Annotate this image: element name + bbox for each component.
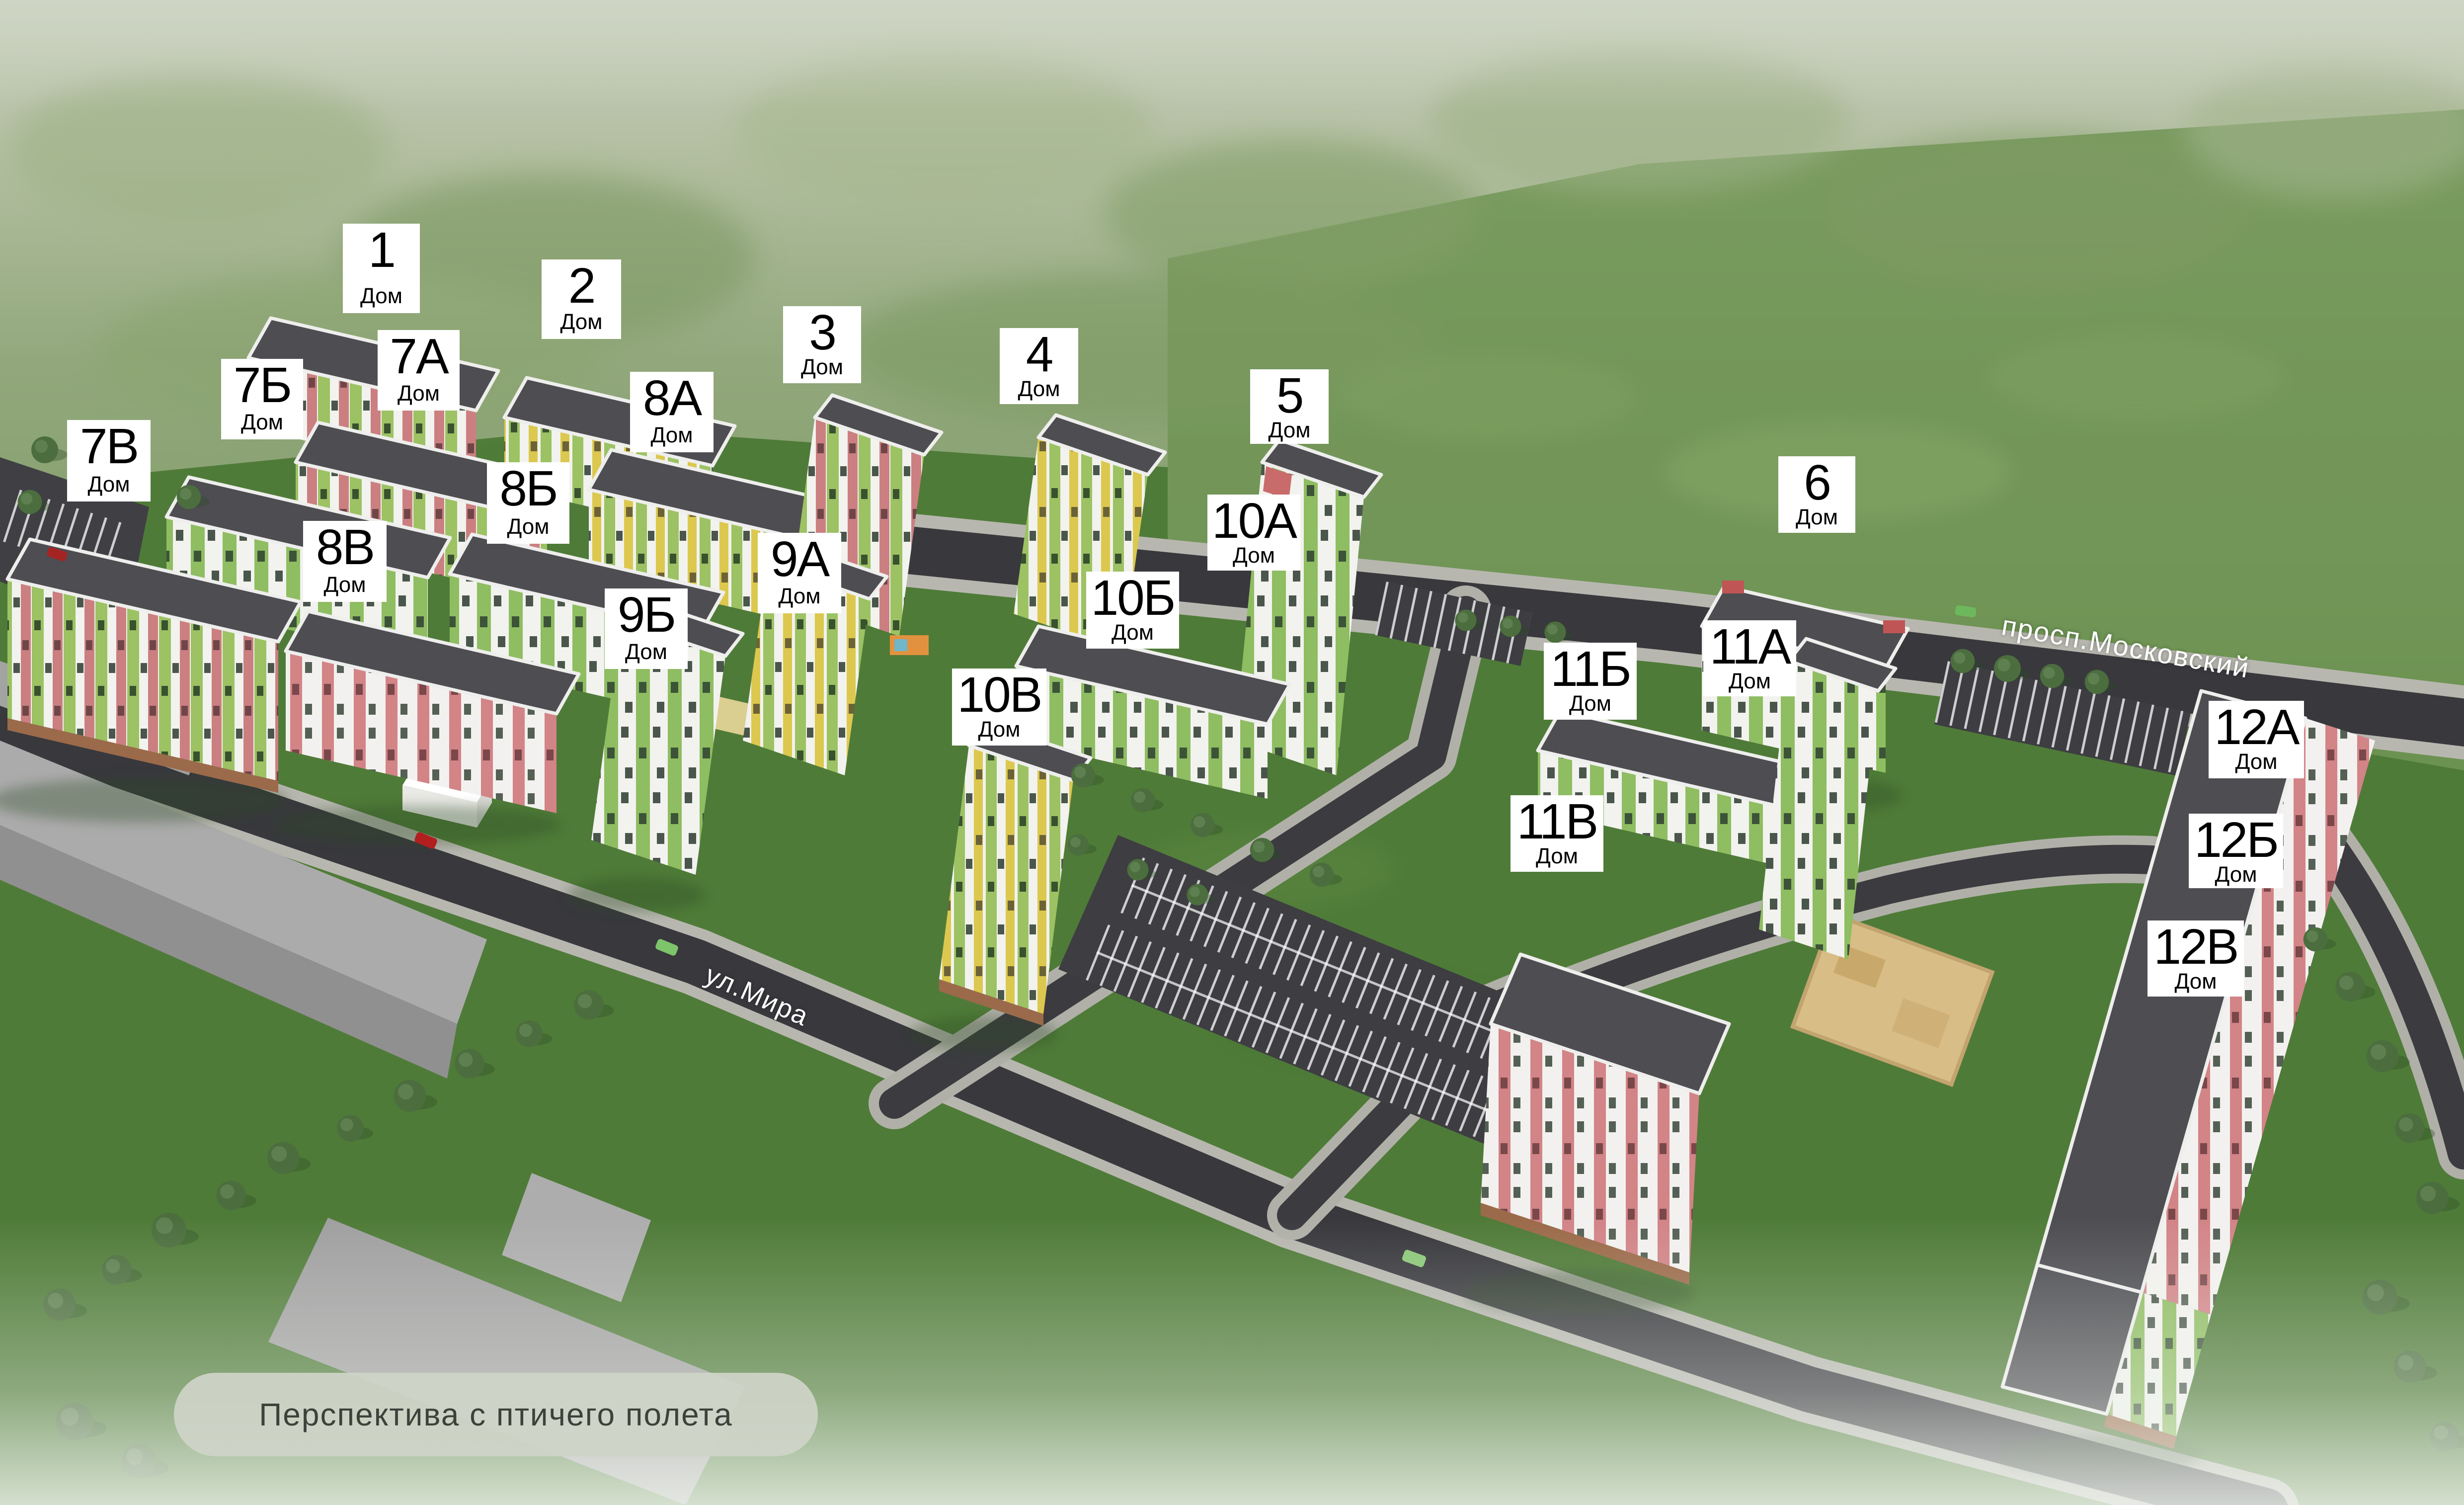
house-number: 4 xyxy=(1026,331,1052,378)
house-number: 12Б xyxy=(2194,817,2278,864)
house-word: Дом xyxy=(1796,506,1838,528)
house-label-5: 5Дом xyxy=(1250,369,1329,444)
house-number: 6 xyxy=(1804,459,1830,506)
house-number: 7В xyxy=(80,423,138,470)
house-number: 9Б xyxy=(618,591,675,639)
house-label-11v: 11ВДом xyxy=(1510,795,1603,872)
house-number: 11В xyxy=(1517,798,1597,845)
house-word: Дом xyxy=(323,574,366,596)
house-word: Дом xyxy=(801,356,843,378)
house-word: Дом xyxy=(2235,751,2277,773)
house-number: 7Б xyxy=(234,362,291,409)
house-label-9b: 9БДом xyxy=(605,588,688,669)
house-label-4: 4Дом xyxy=(1000,328,1078,404)
house-word: Дом xyxy=(1569,693,1611,715)
house-word: Дом xyxy=(1268,419,1310,441)
house-word: Дом xyxy=(625,641,667,663)
house-number: 5 xyxy=(1276,372,1303,419)
house-label-11a: 11АДом xyxy=(1703,620,1796,696)
house-word: Дом xyxy=(2174,971,2217,993)
house-label-12b: 12БДом xyxy=(2189,814,2283,888)
house-number: 12В xyxy=(2154,923,2238,971)
house-label-7a: 7АДом xyxy=(378,330,460,411)
caption-text: Перспектива с птичего полета xyxy=(259,1396,732,1433)
house-label-12a: 12АДом xyxy=(2209,701,2304,778)
house-label-7v: 7ВДом xyxy=(67,420,151,502)
house-label-3: 3Дом xyxy=(783,306,861,383)
house-word: Дом xyxy=(507,516,549,538)
house-word: Дом xyxy=(978,719,1020,741)
house-word: Дом xyxy=(1536,845,1578,867)
house-label-10b: 10БДом xyxy=(1086,572,1179,649)
house-number: 7А xyxy=(390,333,447,380)
house-word: Дом xyxy=(241,412,283,433)
caption-pill: Перспектива с птичего полета xyxy=(174,1373,818,1456)
house-word: Дом xyxy=(1018,378,1060,400)
house-word: Дом xyxy=(2215,864,2257,886)
labels-layer: 1Дом 2Дом 3Дом 4Дом 5Дом 6Дом 7АДом 7БДо… xyxy=(0,0,2464,1505)
house-number: 10А xyxy=(1212,498,1296,545)
house-number: 1 xyxy=(368,227,395,274)
house-label-6: 6Дом xyxy=(1778,456,1855,533)
house-label-1: 1Дом xyxy=(343,224,420,313)
house-number: 2 xyxy=(568,262,595,310)
house-word: Дом xyxy=(1729,670,1771,692)
house-word: Дом xyxy=(1112,622,1154,644)
house-label-2: 2Дом xyxy=(542,259,621,339)
house-label-8a: 8АДом xyxy=(630,372,714,452)
house-number: 10В xyxy=(957,671,1041,719)
house-number: 8А xyxy=(643,375,701,422)
house-number: 8В xyxy=(316,524,374,571)
masterplan-rendering: 1Дом 2Дом 3Дом 4Дом 5Дом 6Дом 7АДом 7БДо… xyxy=(0,0,2464,1505)
house-number: 12А xyxy=(2215,704,2299,751)
house-number: 10Б xyxy=(1091,575,1175,622)
house-number: 3 xyxy=(809,309,835,356)
house-label-10v: 10ВДом xyxy=(952,669,1046,746)
house-word: Дом xyxy=(1233,545,1275,567)
house-number: 9А xyxy=(771,536,828,583)
house-label-9a: 9АДом xyxy=(758,533,841,613)
house-label-8b: 8БДом xyxy=(487,462,569,544)
house-label-8v: 8ВДом xyxy=(303,521,387,602)
house-label-12v: 12ВДом xyxy=(2147,920,2244,997)
house-word: Дом xyxy=(560,311,602,333)
house-number: 11А xyxy=(1710,623,1790,670)
house-label-10a: 10АДом xyxy=(1207,495,1300,571)
house-word: Дом xyxy=(360,285,402,307)
house-label-11b: 11БДом xyxy=(1544,643,1637,720)
house-label-7b: 7БДом xyxy=(221,359,303,439)
house-number: 11Б xyxy=(1550,646,1630,693)
house-word: Дом xyxy=(87,474,130,496)
house-number: 8Б xyxy=(499,465,556,512)
house-word: Дом xyxy=(397,383,440,405)
house-word: Дом xyxy=(650,424,693,446)
house-word: Дом xyxy=(778,585,820,607)
